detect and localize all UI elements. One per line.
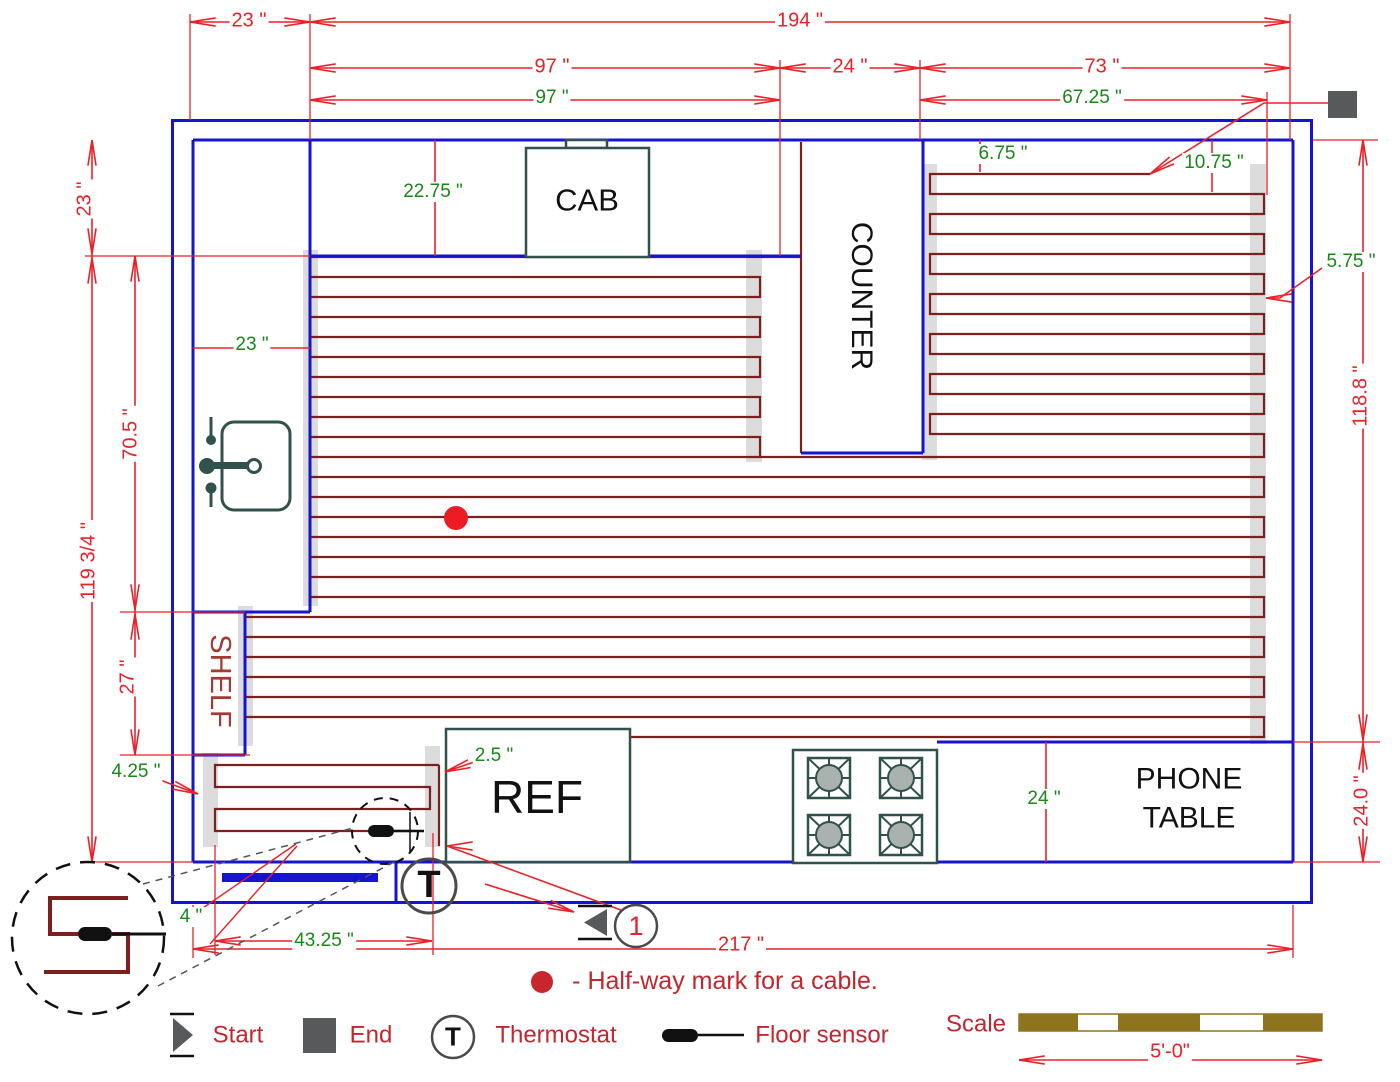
- legend-end-icon: [303, 1018, 336, 1053]
- heating-cables: [215, 142, 1264, 846]
- start-marker-icon: [584, 909, 607, 936]
- floor-plan-canvas: 23 " 194 " 97 " 24 " 73 " 23 " 119 3/4 "…: [0, 0, 1400, 1082]
- dim-scale-5-0: 5'-0": [1148, 1042, 1192, 1063]
- dim-5-75: 5.75 ": [1324, 252, 1377, 272]
- dim-6-75: 6.75 ": [976, 144, 1029, 164]
- legend-floor-sensor-icon: [662, 1029, 698, 1042]
- start-point-number: 1: [626, 912, 645, 940]
- dim-97-green: 97 ": [533, 88, 570, 108]
- floor-sensor-detail-icon: [78, 927, 112, 941]
- legend-halfway-dot: [531, 971, 553, 993]
- dim-119-34: 119 3/4 ": [79, 520, 100, 602]
- room-label-shelf: SHELF: [205, 632, 235, 729]
- dim-2-5: 2.5 ": [473, 746, 515, 766]
- cable-backing-strips: [203, 164, 1266, 847]
- scale-bar: [1019, 1014, 1322, 1031]
- end-marker-icon: [1328, 91, 1357, 118]
- dim-10-75: 10.75 ": [1182, 153, 1246, 173]
- dim-23-sink: 23 ": [233, 335, 270, 355]
- legend-start-icon: [173, 1018, 193, 1052]
- dim-23-top: 23 ": [230, 11, 269, 32]
- room-label-cab: CAB: [553, 185, 621, 218]
- dim-73: 73 ": [1083, 57, 1122, 78]
- thermostat-letter: T: [415, 866, 442, 906]
- floor-sensor-icon: [368, 825, 394, 837]
- sink-icon: [199, 417, 290, 510]
- dim-24-top: 24 ": [831, 57, 870, 78]
- dim-22-75: 22.75 ": [401, 182, 465, 202]
- thermostat-letter-legend: T: [443, 1023, 463, 1050]
- dim-24-phone: 24 ": [1025, 789, 1062, 809]
- legend-thermostat-label: Thermostat: [493, 1022, 618, 1047]
- dim-70-5: 70.5 ": [121, 406, 142, 462]
- dim-217: 217 ": [716, 935, 766, 956]
- dim-4-25: 4.25 ": [109, 762, 162, 782]
- dim-67-25: 67.25 ": [1060, 88, 1124, 108]
- legend-halfway-label: - Half-way mark for a cable.: [570, 968, 880, 994]
- room-label-table: TABLE: [1141, 802, 1238, 834]
- cable-zone-left: [310, 257, 801, 457]
- dim-118-8: 118.8 ": [1351, 363, 1372, 428]
- dim-24-0: 24.0 ": [1352, 773, 1373, 829]
- dim-4: 4 ": [178, 907, 205, 927]
- legend-scale-label: Scale: [944, 1011, 1008, 1036]
- room-label-counter: COUNTER: [845, 220, 877, 372]
- dim-43-25: 43.25 ": [292, 931, 356, 951]
- stove-icon: [793, 750, 937, 863]
- halfway-mark-dot: [444, 506, 468, 530]
- room-label-ref: REF: [489, 773, 585, 821]
- sensor-detail-callout: [12, 828, 398, 1014]
- dim-23-left: 23 ": [75, 180, 96, 219]
- legend-floor-sensor-label: Floor sensor: [753, 1022, 890, 1047]
- legend-end-label: End: [348, 1022, 395, 1047]
- dim-194: 194 ": [775, 11, 825, 32]
- dim-97-red: 97 ": [533, 57, 572, 78]
- window-bar: [222, 873, 378, 882]
- legend-start-label: Start: [211, 1022, 266, 1047]
- room-label-phone: PHONE: [1134, 763, 1245, 795]
- dim-27: 27 ": [118, 658, 139, 697]
